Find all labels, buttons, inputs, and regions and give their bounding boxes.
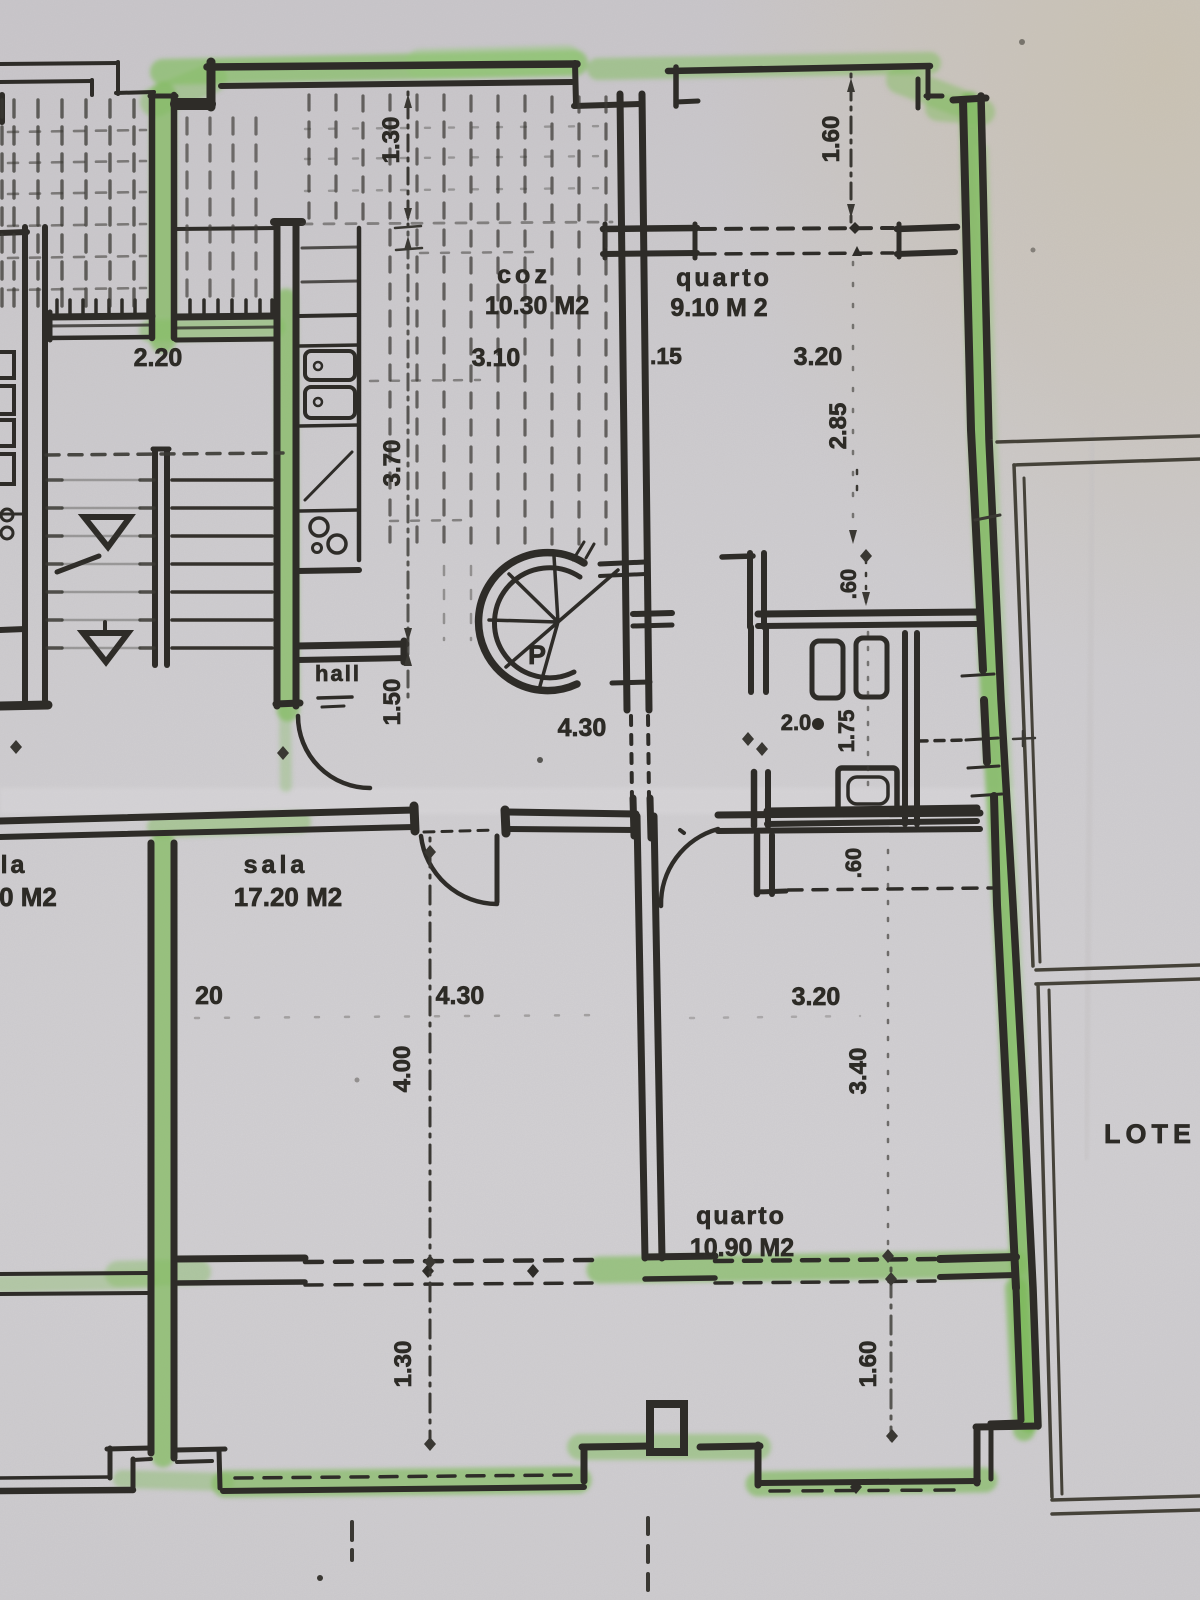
svg-text:1.30: 1.30 [390, 1341, 417, 1388]
svg-text:.15: .15 [650, 343, 682, 369]
svg-text:10.30 M2: 10.30 M2 [485, 292, 589, 320]
svg-text:2.20: 2.20 [134, 344, 183, 372]
svg-text:10.90 M2: 10.90 M2 [690, 1234, 794, 1262]
svg-text:3.20: 3.20 [794, 343, 843, 371]
svg-text:2.0: 2.0 [781, 710, 812, 735]
svg-text:3.20: 3.20 [792, 983, 841, 1011]
svg-text:1.30: 1.30 [378, 117, 405, 164]
svg-text:.60: .60 [841, 848, 866, 879]
svg-text:la: la [1, 851, 28, 879]
svg-text:20: 20 [195, 982, 223, 1010]
svg-text:1.50: 1.50 [379, 679, 406, 726]
svg-text:2.85: 2.85 [825, 403, 852, 450]
svg-text:4.30: 4.30 [558, 714, 607, 742]
svg-text:4.30: 4.30 [436, 982, 485, 1010]
svg-text:3.70: 3.70 [379, 440, 406, 487]
svg-text:1.60: 1.60 [818, 116, 845, 163]
svg-text:3.10: 3.10 [472, 344, 521, 372]
svg-text:coz: coz [497, 261, 551, 289]
svg-text:LOTE: LOTE [1104, 1119, 1196, 1149]
svg-text:4.00: 4.00 [389, 1046, 416, 1093]
svg-text:hall: hall [315, 661, 361, 686]
svg-text:17.20 M2: 17.20 M2 [234, 882, 342, 912]
svg-text:1.75: 1.75 [834, 710, 859, 753]
svg-text:3.40: 3.40 [845, 1048, 872, 1095]
svg-text:0 M2: 0 M2 [0, 882, 57, 912]
svg-text:.60: .60 [836, 569, 861, 600]
svg-text:9.10 M 2: 9.10 M 2 [670, 294, 767, 322]
svg-text:quarto: quarto [696, 1202, 786, 1230]
svg-text:sala: sala [244, 851, 309, 879]
svg-text:1.60: 1.60 [855, 1341, 882, 1388]
svg-text:quarto: quarto [676, 264, 772, 292]
svg-text:P: P [528, 640, 546, 670]
